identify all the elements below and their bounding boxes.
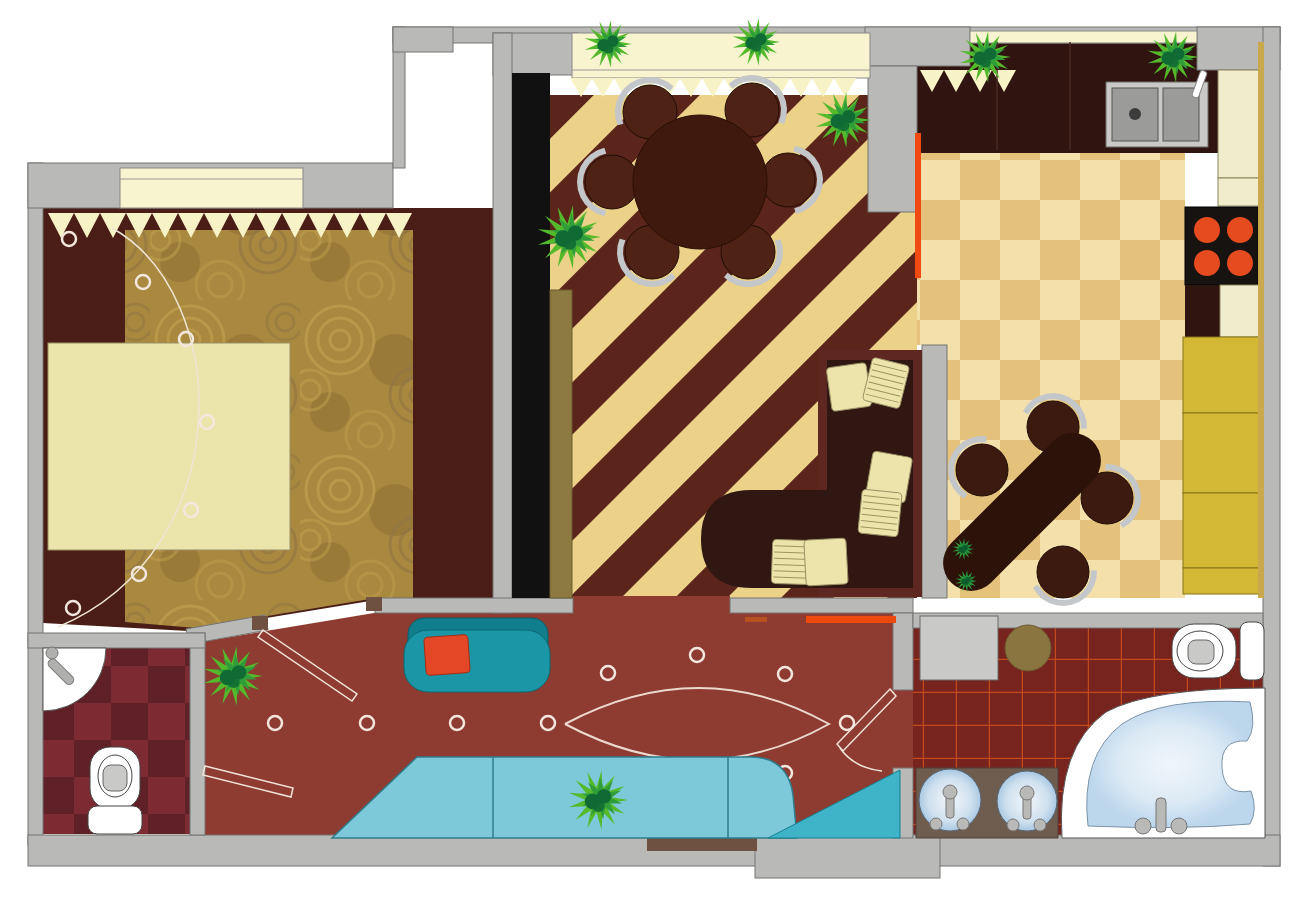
floor-plan-svg (0, 0, 1312, 897)
wall-bath-left-upper (893, 613, 913, 690)
sink-faucet-head (1020, 786, 1034, 800)
threshold-strip-small (745, 617, 767, 622)
door-jamb (252, 616, 268, 630)
stove-burner (1227, 250, 1253, 276)
wall-entry-step (755, 835, 940, 878)
bathtub-faucet-knob (1171, 818, 1187, 834)
tv-unit (512, 73, 550, 598)
shelf (550, 290, 572, 598)
stove-burner (1194, 217, 1220, 243)
wall-tee-bar (865, 27, 970, 66)
wc-toilet-inner (103, 765, 127, 791)
sofa-pillow-striped (858, 489, 902, 537)
washing-machine (920, 616, 998, 680)
floor-plan-canvas (0, 0, 1312, 897)
radiator (915, 133, 921, 278)
cabinet-yellow (1183, 337, 1262, 413)
cabinet-yellow (1183, 493, 1262, 568)
stove-burner (1227, 217, 1253, 243)
cabinet-yellow (1183, 568, 1262, 594)
cabinet (1220, 285, 1262, 337)
kitchen-floor (917, 153, 1185, 598)
wall-tee-stem (868, 66, 917, 212)
cabinet-tall (1218, 70, 1262, 178)
sink-knob (957, 818, 969, 830)
bedroom-window (120, 168, 303, 208)
cabinet (1218, 178, 1262, 206)
bath-toilet-inner (1188, 640, 1214, 664)
cabinet-yellow (1183, 413, 1262, 493)
wall-outer-right (1263, 27, 1280, 866)
wc-toilet-tank (88, 806, 142, 834)
stool (1005, 625, 1051, 671)
threshold-strip (806, 616, 896, 623)
bed (48, 343, 290, 550)
sink-drain (1129, 108, 1141, 120)
wc-faucet-knob (46, 647, 58, 659)
counter-dark (1185, 285, 1220, 337)
bath-toilet-tank (1240, 622, 1264, 680)
sink-knob (930, 818, 942, 830)
wall-hall-top-left (375, 598, 573, 613)
bench-pillow (424, 635, 471, 676)
cabinet-edge (1258, 42, 1264, 598)
wall-top-left-block (393, 27, 453, 52)
wall-outer-left (28, 163, 43, 845)
wall-bedroom-living (493, 33, 512, 613)
wall-hall-top-right (730, 598, 913, 613)
bathtub-faucet-knob (1135, 818, 1151, 834)
dining-table (633, 115, 767, 249)
wall-wc-top (28, 633, 205, 648)
kitchen-window (970, 31, 1197, 43)
sink-faucet-head (943, 785, 957, 799)
stove-burner (1194, 250, 1220, 276)
door-jamb (366, 597, 382, 611)
sofa-pillow (804, 538, 848, 586)
wall-wc-right (190, 633, 205, 835)
sink-knob (1007, 819, 1019, 831)
sink-knob (1034, 819, 1046, 831)
bathtub-faucet (1156, 798, 1166, 832)
